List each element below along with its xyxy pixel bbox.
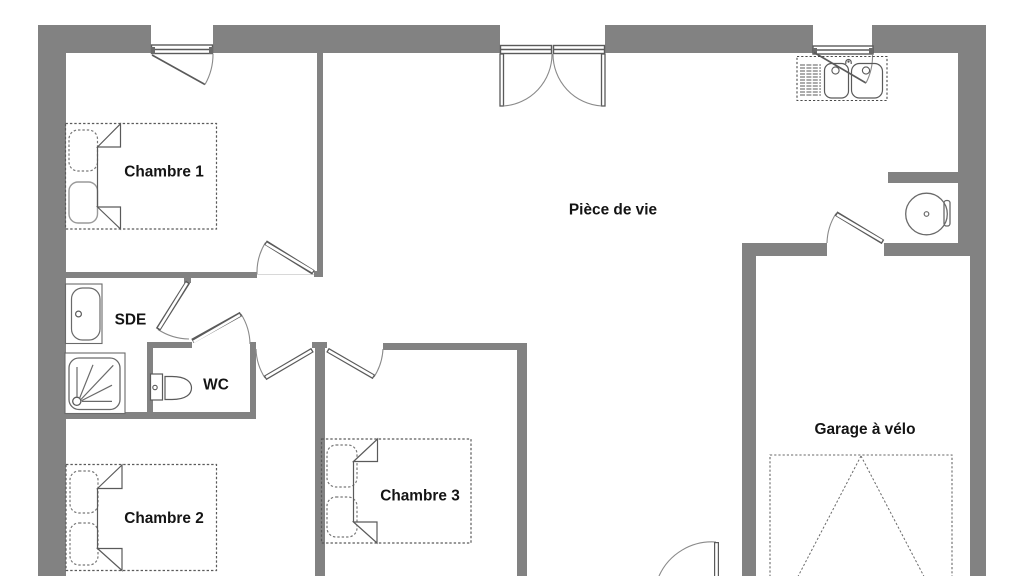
svg-text:Chambre 2: Chambre 2	[124, 510, 204, 527]
svg-text:Chambre 3: Chambre 3	[380, 488, 460, 505]
svg-text:WC: WC	[203, 377, 229, 394]
svg-text:Chambre 1: Chambre 1	[124, 164, 204, 181]
svg-text:SDE: SDE	[115, 312, 147, 329]
svg-text:Pièce de vie: Pièce de vie	[569, 202, 658, 219]
svg-text:Garage à vélo: Garage à vélo	[815, 421, 916, 438]
